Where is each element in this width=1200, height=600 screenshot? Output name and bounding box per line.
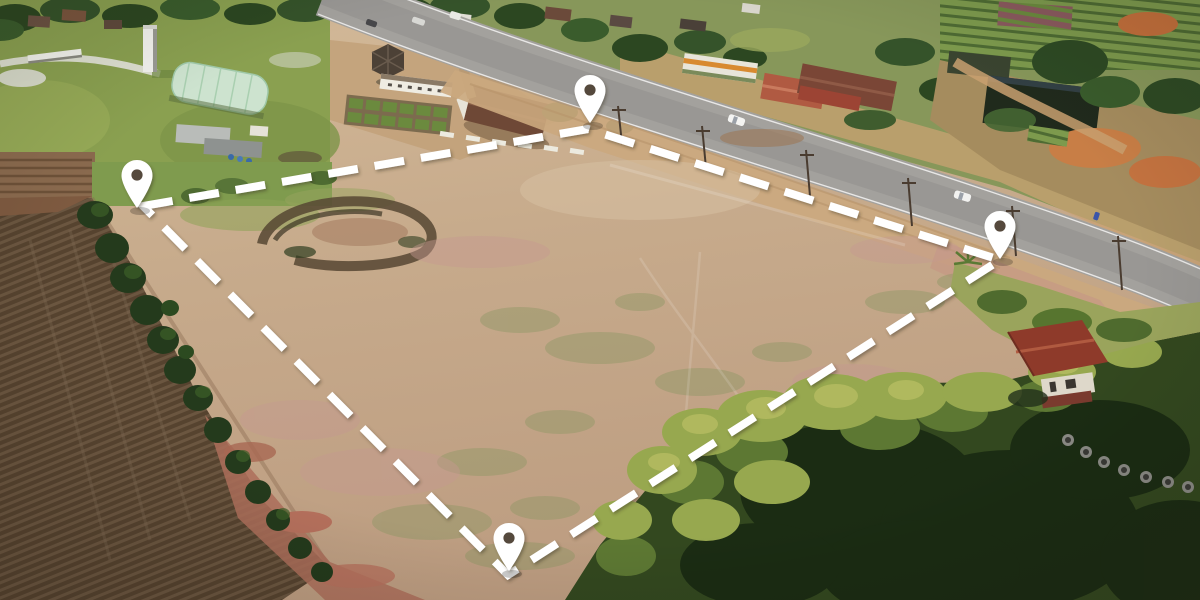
aerial-photo — [0, 0, 1200, 600]
plot-boundary-dashed-line — [143, 129, 1000, 575]
pin-top-marker-icon — [575, 75, 606, 130]
plot-overlay — [0, 0, 1200, 600]
boundary-pins — [122, 75, 1016, 578]
